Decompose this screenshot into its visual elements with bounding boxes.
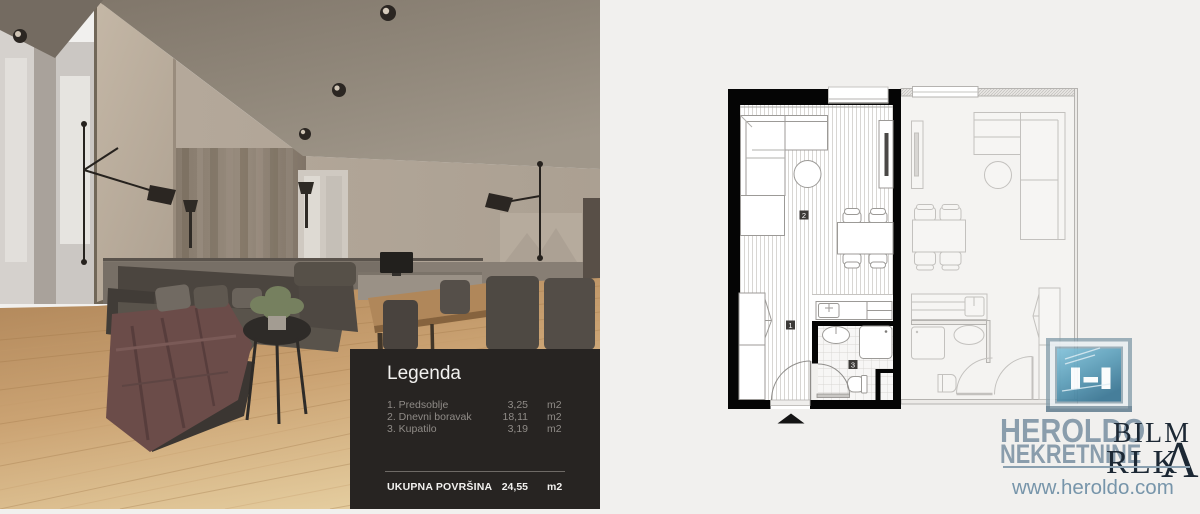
svg-text:2: 2 — [802, 211, 806, 220]
svg-text:1: 1 — [788, 321, 792, 330]
svg-text:3: 3 — [851, 361, 855, 370]
